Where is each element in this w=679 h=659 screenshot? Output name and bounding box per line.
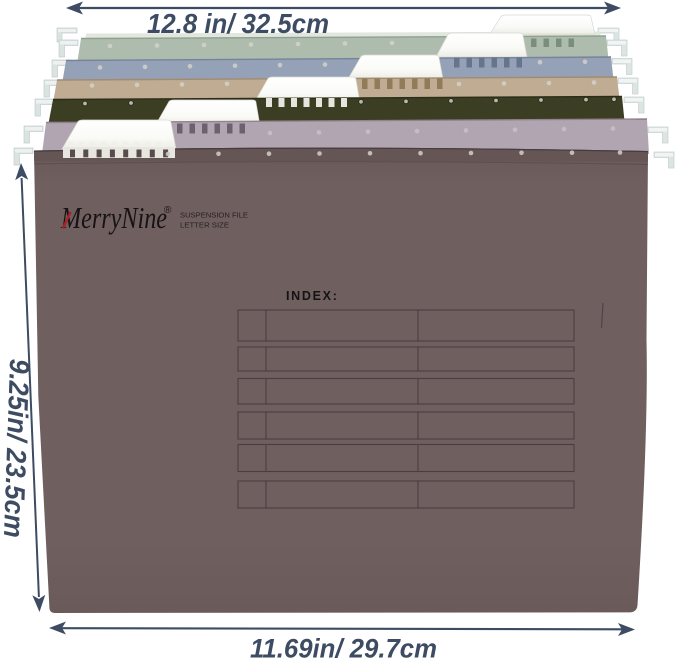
svg-text:LETTER SIZE: LETTER SIZE [180, 221, 229, 230]
svg-text:9.25in/ 23.5cm: 9.25in/ 23.5cm [0, 358, 35, 538]
svg-text:INDEX:: INDEX: [286, 289, 339, 303]
svg-text:®: ® [164, 205, 172, 216]
svg-text:11.69in/ 29.7cm: 11.69in/ 29.7cm [250, 633, 437, 659]
svg-text:12.8 in/ 32.5cm: 12.8 in/ 32.5cm [147, 8, 329, 39]
svg-text:SUSPENSION FILE: SUSPENSION FILE [180, 211, 248, 220]
svg-text:MerryNine: MerryNine [60, 200, 167, 235]
